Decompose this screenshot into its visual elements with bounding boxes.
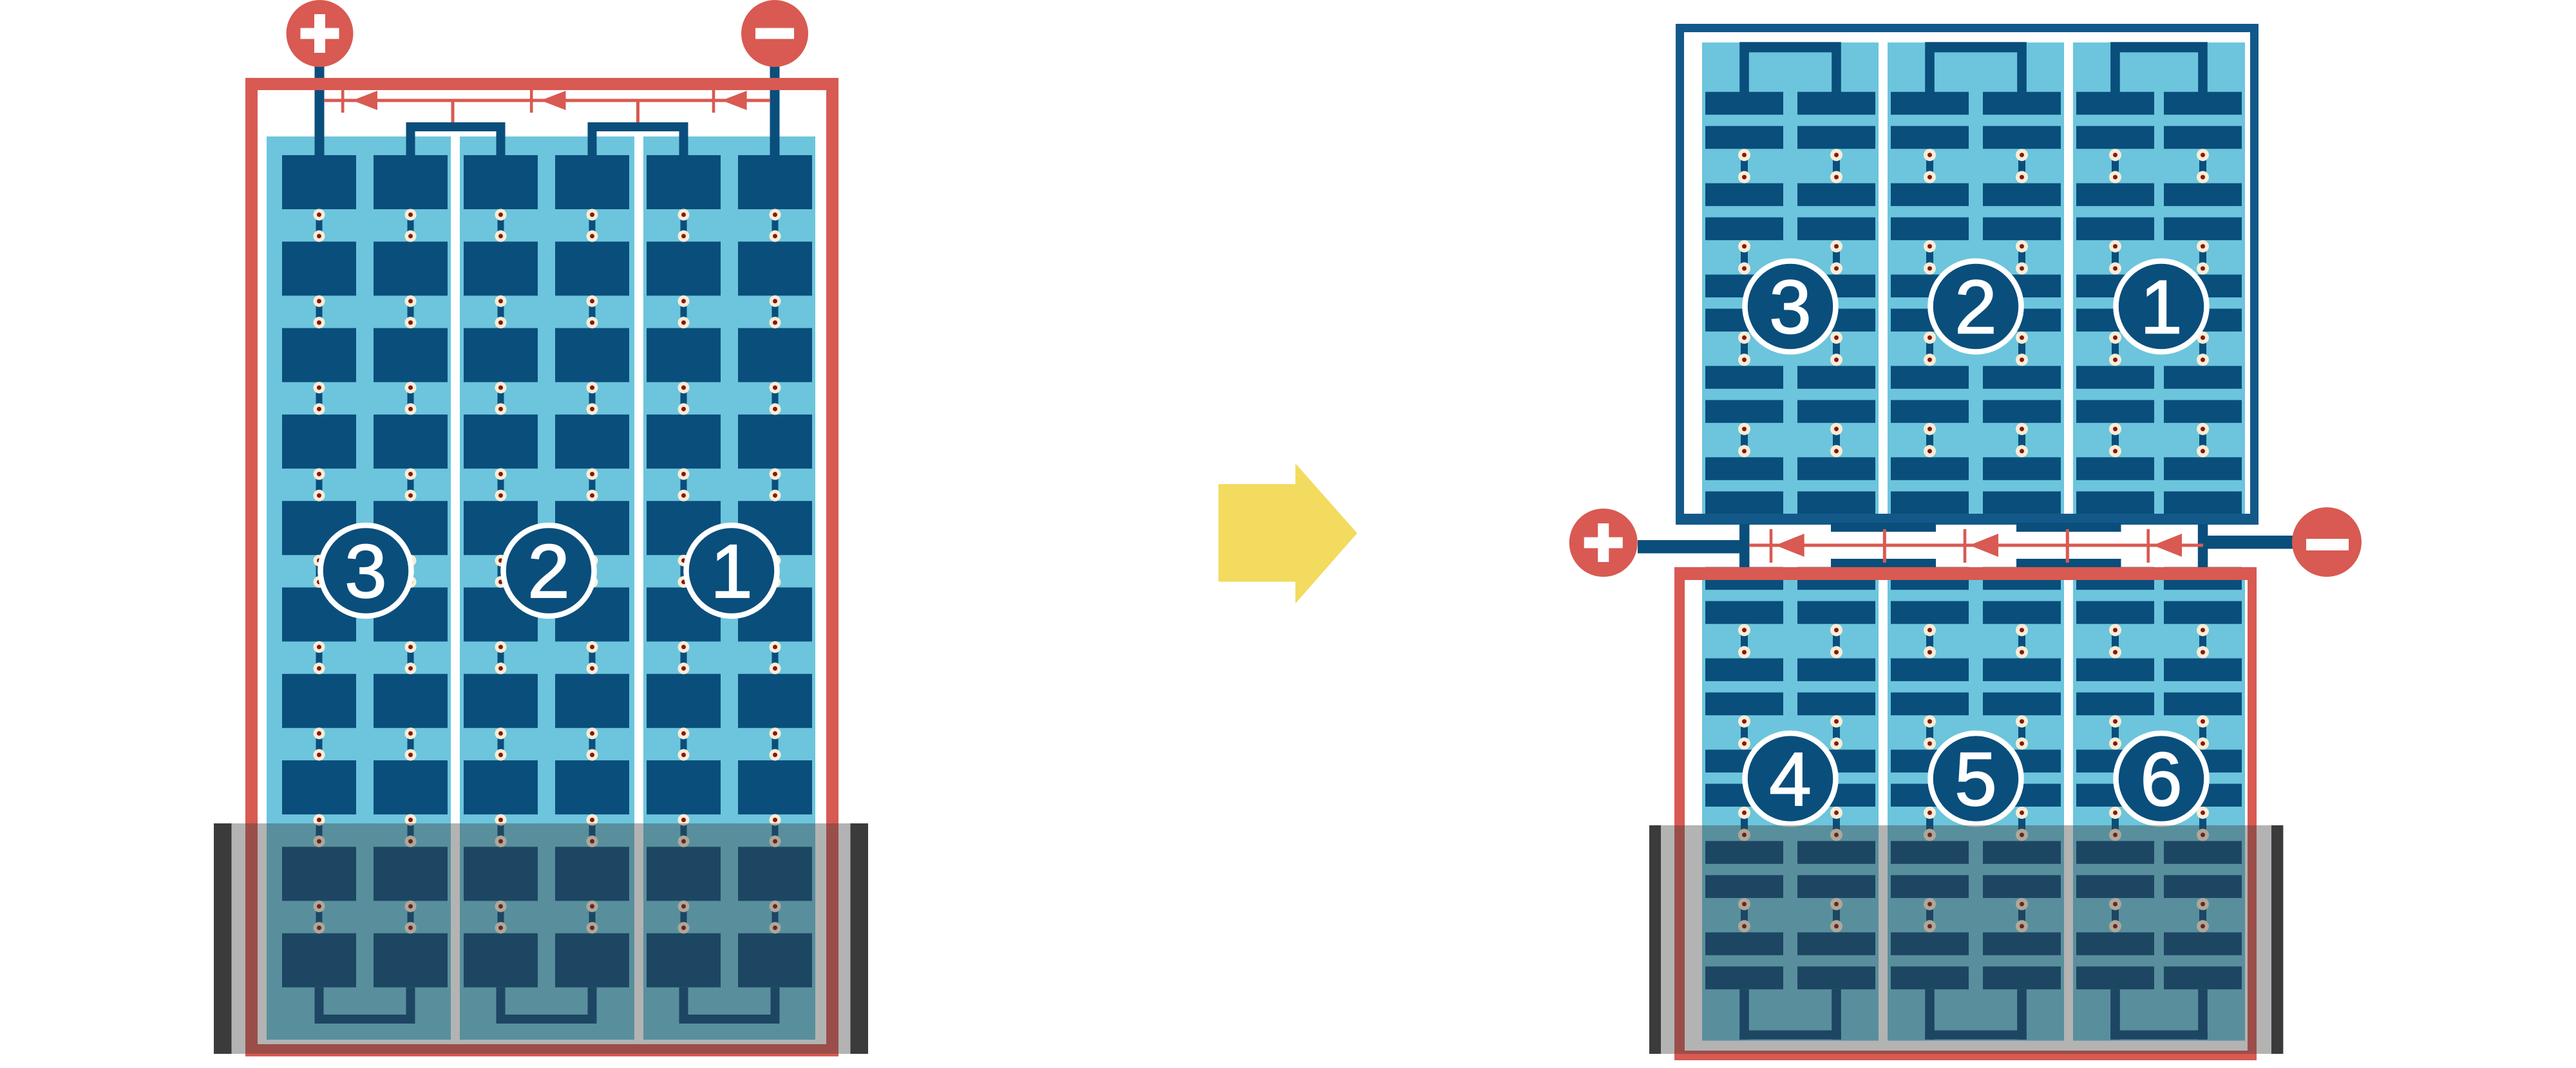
- svg-text:2: 2: [1955, 265, 1997, 350]
- svg-text:2: 2: [527, 529, 570, 614]
- svg-text:3: 3: [345, 529, 387, 614]
- svg-text:6: 6: [2140, 737, 2183, 822]
- svg-text:1: 1: [710, 529, 753, 614]
- svg-text:5: 5: [1955, 737, 1997, 822]
- svg-text:3: 3: [1769, 265, 1812, 350]
- svg-text:4: 4: [1769, 737, 1812, 822]
- svg-text:1: 1: [2140, 265, 2183, 350]
